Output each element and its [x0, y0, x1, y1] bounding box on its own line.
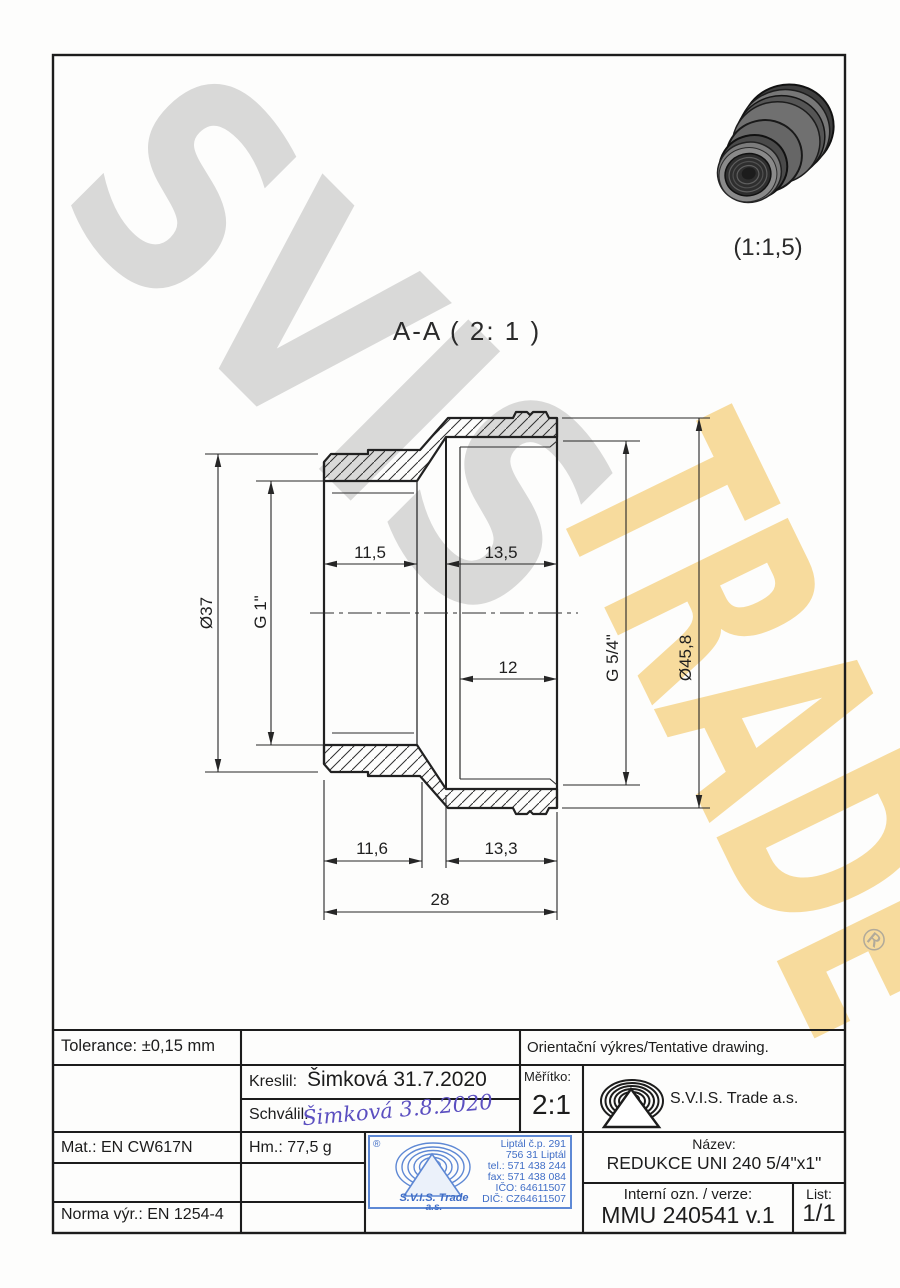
meritko-value: 2:1: [520, 1089, 583, 1121]
schvalil-label: Schválil:: [249, 1106, 309, 1124]
dim-text-12: 12: [499, 658, 518, 677]
drawing-sheet: SVIS TRADE ®: [0, 0, 900, 1288]
material-text: Mat.: EN CW617N: [61, 1139, 193, 1157]
dim-text-13-5: 13,5: [484, 543, 517, 562]
list-value: 1/1: [793, 1200, 845, 1228]
norma-text: Norma výr.: EN 1254-4: [61, 1206, 224, 1224]
meritko-label: Měřítko:: [524, 1069, 571, 1084]
kreslil-value: Šimková 31.7.2020: [307, 1068, 487, 1092]
interni-value: MMU 240541 v.1: [583, 1202, 793, 1229]
interni-label: Interní ozn. / verze:: [583, 1186, 793, 1203]
dim-text-dia458: Ø45,8: [676, 635, 695, 681]
company-name: S.V.I.S. Trade a.s.: [670, 1090, 798, 1108]
stamp-registered-icon: ®: [373, 1139, 380, 1150]
view-3d-scale-label: (1:1,5): [733, 234, 802, 261]
part-3d-view: (1:1,5): [700, 75, 848, 261]
nazev-value: REDUKCE UNI 240 5/4"x1": [583, 1153, 845, 1174]
dim-text-13-3: 13,3: [484, 839, 517, 858]
dim-text-11-6: 11,6: [356, 839, 388, 858]
tolerance-text: Tolerance: ±0,15 mm: [61, 1037, 215, 1056]
thread-crest-line-large-bottom: [460, 779, 557, 785]
tentative-drawing-note: Orientační výkres/Tentative drawing.: [527, 1039, 769, 1056]
dim-text-g1: G 1": [251, 595, 270, 628]
nazev-label: Název:: [583, 1136, 845, 1152]
dim-text-11-5: 11,5: [354, 543, 386, 562]
dim-text-g54: G 5/4": [603, 634, 622, 682]
section-title: A-A ( 2: 1 ): [393, 316, 541, 346]
dim-text-28: 28: [431, 890, 450, 909]
weight-text: Hm.: 77,5 g: [249, 1139, 332, 1157]
kreslil-label: Kreslil:: [249, 1073, 297, 1091]
dim-text-dia37: Ø37: [197, 597, 216, 629]
stamp-company-line2: a.s.: [393, 1202, 475, 1213]
company-logo-icon: [601, 1080, 663, 1127]
